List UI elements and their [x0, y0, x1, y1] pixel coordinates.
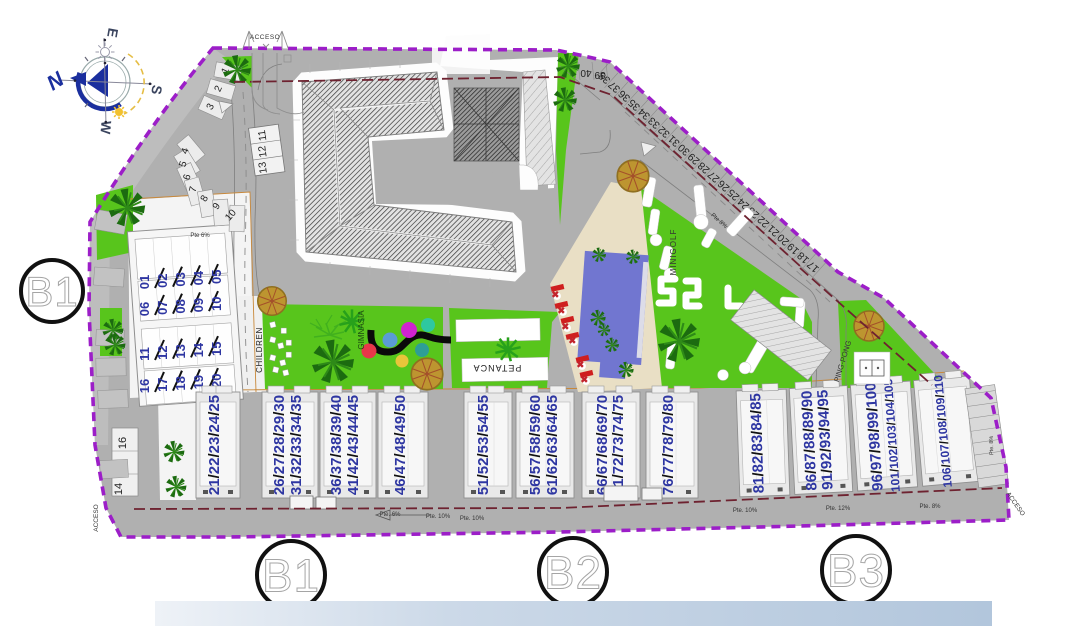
svg-text:07: 07 — [155, 300, 170, 314]
svg-text:Pte. 10%: Pte. 10% — [733, 508, 758, 514]
svg-text:40: 40 — [580, 67, 592, 78]
svg-text:46/47/48/49/50: 46/47/48/49/50 — [392, 395, 409, 495]
svg-text:13: 13 — [256, 161, 270, 174]
svg-text:12: 12 — [155, 345, 170, 359]
svg-text:66/67/68/69/70: 66/67/68/69/70 — [594, 395, 611, 495]
svg-text:39: 39 — [594, 69, 606, 80]
svg-text:03: 03 — [173, 272, 188, 286]
svg-text:36/37/38/39/40: 36/37/38/39/40 — [328, 395, 345, 495]
svg-text:18: 18 — [173, 376, 188, 390]
svg-text:11: 11 — [256, 129, 269, 142]
svg-text:B2: B2 — [544, 547, 602, 599]
svg-text:06: 06 — [137, 302, 152, 316]
svg-text:14: 14 — [191, 342, 206, 357]
svg-text:56/57/58/59/60: 56/57/58/59/60 — [527, 395, 544, 495]
svg-text:B1: B1 — [25, 268, 78, 315]
svg-text:Pte. 8%: Pte. 8% — [989, 436, 995, 455]
svg-text:71/72/73/74/75: 71/72/73/74/75 — [610, 395, 627, 495]
svg-text:31/32/33/34/35: 31/32/33/34/35 — [288, 395, 305, 495]
svg-text:10: 10 — [209, 297, 224, 311]
svg-text:61/62/63/64/65: 61/62/63/64/65 — [544, 395, 561, 495]
svg-text:21/22/23/24/25: 21/22/23/24/25 — [206, 395, 223, 495]
svg-text:76/77/78/79/80: 76/77/78/79/80 — [660, 395, 677, 495]
svg-text:81/82/83/84/85: 81/82/83/84/85 — [747, 393, 767, 494]
svg-text:09: 09 — [191, 298, 206, 312]
svg-text:16: 16 — [117, 437, 129, 449]
svg-text:01: 01 — [137, 275, 152, 289]
svg-text:GIMNASIA: GIMNASIA — [357, 310, 366, 350]
svg-text:13: 13 — [173, 344, 188, 358]
svg-text:Pte. 8%: Pte. 8% — [919, 504, 941, 510]
svg-text:MINIGOLF: MINIGOLF — [669, 229, 678, 276]
svg-text:11: 11 — [137, 347, 152, 361]
svg-text:PETANCA: PETANCA — [473, 363, 522, 373]
svg-text:ACCESO: ACCESO — [250, 34, 280, 41]
svg-text:15: 15 — [209, 342, 224, 356]
svg-text:05: 05 — [209, 270, 224, 284]
svg-text:02: 02 — [155, 273, 170, 287]
svg-text:51/52/53/54/55: 51/52/53/54/55 — [475, 395, 492, 495]
svg-text:14: 14 — [113, 483, 125, 495]
svg-text:B1: B1 — [262, 550, 320, 602]
svg-text:41/42/43/44/45: 41/42/43/44/45 — [345, 395, 362, 495]
svg-text:Pte. 12%: Pte. 12% — [826, 506, 851, 512]
svg-text:Pte 6%: Pte 6% — [190, 233, 210, 239]
svg-text:17: 17 — [155, 377, 170, 391]
svg-text:26/27/28/29/30: 26/27/28/29/30 — [271, 395, 288, 495]
svg-text:04: 04 — [191, 270, 206, 285]
svg-text:ACCESO: ACCESO — [93, 504, 100, 531]
svg-text:12: 12 — [256, 145, 270, 158]
svg-text:16: 16 — [137, 379, 152, 393]
svg-text:Pte. 10%: Pte. 10% — [460, 516, 485, 522]
svg-text:CHILDREN: CHILDREN — [255, 327, 264, 373]
svg-text:08: 08 — [173, 299, 188, 313]
svg-text:B3: B3 — [827, 545, 885, 597]
